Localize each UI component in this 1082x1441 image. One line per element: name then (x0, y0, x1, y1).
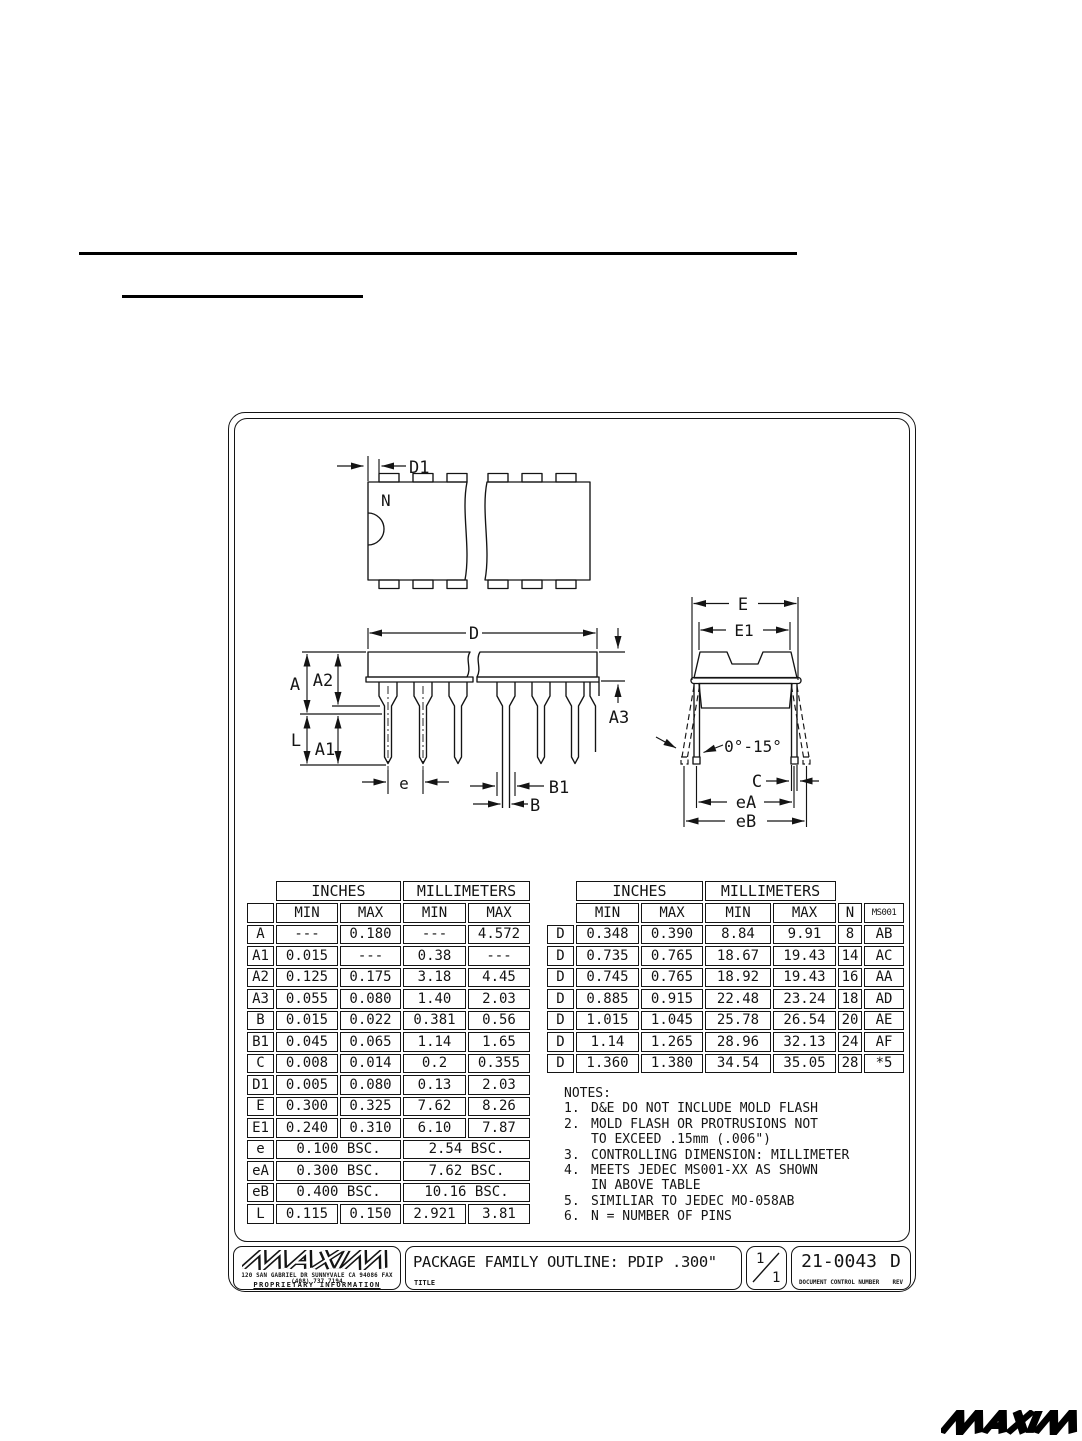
table-corner (547, 903, 574, 923)
column-header: MAX (773, 903, 836, 923)
note-text: CONTROLLING DIMENSION: MILLIMETER (591, 1148, 849, 1163)
note-item: 5.SIMILIAR TO JEDEC MO-058AB (564, 1194, 908, 1209)
dimension-value: AF (864, 1032, 904, 1052)
dimension-symbol: eB (247, 1183, 274, 1203)
dimension-value: 32.13 (773, 1032, 836, 1052)
note-item: 6.N = NUMBER OF PINS (564, 1209, 908, 1224)
dimension-value: 0.355 (468, 1054, 530, 1074)
label-a3: A3 (609, 708, 629, 728)
dimension-value: 0.735 (576, 946, 639, 966)
dimension-value: 1.265 (641, 1032, 703, 1052)
dimension-value: 7.62 BSC. (403, 1161, 530, 1181)
dimension-value: 1.14 (403, 1032, 466, 1052)
maxim-logo-icon (242, 1250, 392, 1270)
table-row: E0.3000.3257.628.26 (247, 1097, 530, 1117)
sheet-total: 1 (772, 1270, 780, 1286)
dimension-value: --- (340, 946, 401, 966)
dimension-symbol: D (547, 1054, 574, 1074)
note-text: SIMILIAR TO JEDEC MO-058AB (591, 1194, 795, 1209)
note-text: D&E DO NOT INCLUDE MOLD FLASH (591, 1101, 818, 1116)
dimension-value: --- (276, 925, 338, 945)
dimension-value: 1.015 (576, 1011, 639, 1031)
title-field-label: TITLE (414, 1279, 435, 1287)
table-row: D0.7350.76518.6719.4314AC (547, 946, 904, 966)
table-row: A20.1250.1753.184.45 (247, 968, 530, 988)
table-row: D0.8850.91522.4823.2418AD (547, 989, 904, 1009)
revision: D (890, 1251, 901, 1272)
table-corner (838, 881, 862, 901)
dimension-value: AB (864, 925, 904, 945)
dimension-value: *5 (864, 1054, 904, 1074)
label-lead-angle: 0°-15° (724, 737, 782, 756)
dimension-symbol: D (547, 989, 574, 1009)
dimension-value: 1.14 (576, 1032, 639, 1052)
label-a1: A1 (315, 740, 335, 760)
proprietary-label: PROPRIETARY INFORMATION (234, 1280, 400, 1289)
dimension-value: 1.045 (641, 1011, 703, 1031)
dimension-value: 35.05 (773, 1054, 836, 1074)
table-row: B10.0450.0651.141.65 (247, 1032, 530, 1052)
dimension-value: 0.300 (276, 1097, 338, 1117)
column-group-header: MILLIMETERS (403, 881, 530, 901)
dimension-symbol: D (547, 1032, 574, 1052)
dimension-value: 0.125 (276, 968, 338, 988)
dimension-value: 0.2 (403, 1054, 466, 1074)
dimension-value: 6.10 (403, 1118, 466, 1138)
dimension-value: 0.045 (276, 1032, 338, 1052)
table-row: B0.0150.0220.3810.56 (247, 1011, 530, 1031)
dimension-value: 0.055 (276, 989, 338, 1009)
dimension-value: 7.87 (468, 1118, 530, 1138)
dimension-value: 18 (838, 989, 862, 1009)
dimension-value: 0.115 (276, 1204, 338, 1224)
dimension-value: 0.015 (276, 946, 338, 966)
dimension-value: 10.16 BSC. (403, 1183, 530, 1203)
column-header: MIN (403, 903, 466, 923)
dimension-value: AD (864, 989, 904, 1009)
document-number-label: DOCUMENT CONTROL NUMBER (799, 1280, 879, 1286)
table-row: D1.0151.04525.7826.5420AE (547, 1011, 904, 1031)
table-corner (864, 881, 904, 901)
dimension-value: 0.175 (340, 968, 401, 988)
dimension-value: 19.43 (773, 946, 836, 966)
dimension-value: 0.014 (340, 1054, 401, 1074)
table-corner (247, 881, 274, 901)
dimension-value: AC (864, 946, 904, 966)
dimension-value: 0.745 (576, 968, 639, 988)
dimension-symbol: D (547, 968, 574, 988)
table-row: D0.3480.3908.849.918AB (547, 925, 904, 945)
note-number: 4. (564, 1163, 591, 1194)
column-group-header: INCHES (276, 881, 401, 901)
table-row: C0.0080.0140.20.355 (247, 1054, 530, 1074)
dimension-value: 2.921 (403, 1204, 466, 1224)
column-header: MIN (276, 903, 338, 923)
dimension-symbol: E1 (247, 1118, 274, 1138)
notes-block: NOTES: 1.D&E DO NOT INCLUDE MOLD FLASH2.… (564, 1086, 908, 1225)
note-text: MEETS JEDEC MS001-XX AS SHOWN IN ABOVE T… (591, 1163, 818, 1194)
table-row: A10.015---0.38--- (247, 946, 530, 966)
table-row: D10.0050.0800.132.03 (247, 1075, 530, 1095)
label-E: E (738, 595, 748, 615)
dimension-value: 2.03 (468, 1075, 530, 1095)
dimension-value: 28 (838, 1054, 862, 1074)
label-a: A (290, 675, 300, 695)
label-c: C (752, 772, 762, 792)
dimension-value: 1.380 (641, 1054, 703, 1074)
note-item: 3.CONTROLLING DIMENSION: MILLIMETER (564, 1148, 908, 1163)
dimension-value: 20 (838, 1011, 862, 1031)
dimension-value: 0.100 BSC. (276, 1140, 401, 1160)
table-row: L0.1150.1502.9213.81 (247, 1204, 530, 1224)
dimension-symbol: E (247, 1097, 274, 1117)
revision-label: REV (893, 1280, 903, 1286)
dimension-value: 0.400 BSC. (276, 1183, 401, 1203)
dimension-value: 0.310 (340, 1118, 401, 1138)
dimension-value: 0.348 (576, 925, 639, 945)
note-item: 4.MEETS JEDEC MS001-XX AS SHOWN IN ABOVE… (564, 1163, 908, 1194)
dimension-value: 0.180 (340, 925, 401, 945)
column-group-header: MILLIMETERS (705, 881, 836, 901)
table-row: D0.7450.76518.9219.4316AA (547, 968, 904, 988)
dimension-value: 0.005 (276, 1075, 338, 1095)
note-number: 1. (564, 1101, 591, 1116)
dimension-value: 0.325 (340, 1097, 401, 1117)
front-view: D A A2 L A1 A3 e (290, 624, 629, 816)
dimension-value: 0.915 (641, 989, 703, 1009)
table-row: eB0.400 BSC.10.16 BSC. (247, 1183, 530, 1203)
label-l: L (291, 731, 301, 751)
dimension-value: 1.360 (576, 1054, 639, 1074)
table-row: E10.2400.3106.107.87 (247, 1118, 530, 1138)
dimension-value: --- (468, 946, 530, 966)
dimension-value: 0.56 (468, 1011, 530, 1031)
logo-block: 120 SAN GABRIEL DR SUNNYVALE CA 94086 FA… (233, 1246, 401, 1290)
d-length-table: INCHESMILLIMETERSMINMAXMINMAXNMS001D0.34… (545, 879, 906, 1075)
label-b: B (530, 796, 540, 816)
dimension-value: 24 (838, 1032, 862, 1052)
dimension-value: 3.81 (468, 1204, 530, 1224)
table-row: A30.0550.0801.402.03 (247, 989, 530, 1009)
note-text: N = NUMBER OF PINS (591, 1209, 732, 1224)
dimension-symbol: D (547, 1011, 574, 1031)
dimension-value: 14 (838, 946, 862, 966)
dimension-symbol: A3 (247, 989, 274, 1009)
dimension-symbol: eA (247, 1161, 274, 1181)
notes-list: 1.D&E DO NOT INCLUDE MOLD FLASH2.MOLD FL… (564, 1101, 908, 1224)
dimension-value: 0.765 (641, 968, 703, 988)
column-header: N (838, 903, 862, 923)
dimension-value: AA (864, 968, 904, 988)
column-group-header: INCHES (576, 881, 703, 901)
column-header: MAX (641, 903, 703, 923)
dimension-symbol: D (547, 925, 574, 945)
dimension-value: 8.84 (705, 925, 771, 945)
label-e: e (399, 774, 409, 793)
label-b1: B1 (549, 778, 569, 798)
dimension-value: 1.65 (468, 1032, 530, 1052)
dimension-value: 19.43 (773, 968, 836, 988)
maxim-footer-logo-icon (941, 1410, 1081, 1435)
column-header: MS001 (864, 903, 904, 923)
label-d: D (469, 624, 479, 644)
dimension-value: 0.080 (340, 989, 401, 1009)
dimension-value: 0.240 (276, 1118, 338, 1138)
sheet-number-block: 1 1 (746, 1246, 787, 1290)
end-view: E E1 0°-15° C eA eB (656, 595, 819, 832)
dimension-value: 2.54 BSC. (403, 1140, 530, 1160)
column-header: MAX (468, 903, 530, 923)
dimension-value: 25.78 (705, 1011, 771, 1031)
dimension-value: 22.48 (705, 989, 771, 1009)
document-number: 21-0043 (801, 1251, 877, 1272)
dimension-value: 8 (838, 925, 862, 945)
dimension-value: 9.91 (773, 925, 836, 945)
note-text: MOLD FLASH OR PROTRUSIONS NOT TO EXCEED … (591, 1117, 818, 1148)
label-pin-count: N (381, 491, 391, 510)
dimension-value: 0.065 (340, 1032, 401, 1052)
label-e1: E1 (734, 621, 753, 640)
dimension-symbol: L (247, 1204, 274, 1224)
dimension-value: 0.13 (403, 1075, 466, 1095)
dimension-value: 0.390 (641, 925, 703, 945)
table-row: A---0.180---4.572 (247, 925, 530, 945)
dimension-value: 0.015 (276, 1011, 338, 1031)
dimension-value: 34.54 (705, 1054, 771, 1074)
dimension-value: 0.150 (340, 1204, 401, 1224)
dimension-symbol: B (247, 1011, 274, 1031)
dimension-value: 0.008 (276, 1054, 338, 1074)
datasheet-page: { "diagram": { "labels": { "n": "N", "d1… (0, 0, 1082, 1441)
title-block: PACKAGE FAMILY OUTLINE: PDIP .300" TITLE (405, 1246, 742, 1290)
table-row: D1.141.26528.9632.1324AF (547, 1032, 904, 1052)
table-row: D1.3601.38034.5435.0528*5 (547, 1054, 904, 1074)
dimension-value: 18.92 (705, 968, 771, 988)
dimension-symbol: C (247, 1054, 274, 1074)
label-d1: D1 (409, 458, 429, 478)
dimension-value: 3.18 (403, 968, 466, 988)
top-divider-rule (79, 252, 797, 255)
label-eb: eB (736, 812, 756, 832)
dimension-value: 0.765 (641, 946, 703, 966)
dimension-symbol: e (247, 1140, 274, 1160)
dimension-value: 0.080 (340, 1075, 401, 1095)
dimension-value: 4.45 (468, 968, 530, 988)
note-number: 6. (564, 1209, 591, 1224)
dimension-value: 1.40 (403, 989, 466, 1009)
top-view: N D1 (337, 456, 590, 589)
label-a2: A2 (313, 671, 333, 691)
dimension-value: 23.24 (773, 989, 836, 1009)
dimension-value: 18.67 (705, 946, 771, 966)
dimension-value: 28.96 (705, 1032, 771, 1052)
table-corner (247, 903, 274, 923)
note-item: 2.MOLD FLASH OR PROTRUSIONS NOT TO EXCEE… (564, 1117, 908, 1148)
dimension-value: --- (403, 925, 466, 945)
dimension-value: 0.885 (576, 989, 639, 1009)
dimension-symbol: D1 (247, 1075, 274, 1095)
dimension-value: 0.300 BSC. (276, 1161, 401, 1181)
dimension-value: 7.62 (403, 1097, 466, 1117)
dimension-value: 8.26 (468, 1097, 530, 1117)
dimension-symbol: A2 (247, 968, 274, 988)
dimension-value: 26.54 (773, 1011, 836, 1031)
dimension-value: 2.03 (468, 989, 530, 1009)
dimension-symbol: A1 (247, 946, 274, 966)
column-header: MIN (576, 903, 639, 923)
dimension-symbol: A (247, 925, 274, 945)
document-number-block: 21-0043 D DOCUMENT CONTROL NUMBER REV (791, 1246, 911, 1290)
note-item: 1.D&E DO NOT INCLUDE MOLD FLASH (564, 1101, 908, 1116)
table-corner (547, 881, 574, 901)
dimension-value: 4.572 (468, 925, 530, 945)
dimension-value: 0.022 (340, 1011, 401, 1031)
note-number: 3. (564, 1148, 591, 1163)
notes-heading: NOTES: (564, 1086, 908, 1101)
section-underline-rule (122, 295, 363, 298)
column-header: MIN (705, 903, 771, 923)
note-number: 2. (564, 1117, 591, 1148)
dimension-symbol: B1 (247, 1032, 274, 1052)
pin1-notch (368, 513, 384, 545)
note-number: 5. (564, 1194, 591, 1209)
dimension-value: 0.38 (403, 946, 466, 966)
table-row: e0.100 BSC.2.54 BSC. (247, 1140, 530, 1160)
table-row: eA0.300 BSC.7.62 BSC. (247, 1161, 530, 1181)
dimension-value: AE (864, 1011, 904, 1031)
dimension-value: 0.381 (403, 1011, 466, 1031)
dimension-symbol: D (547, 946, 574, 966)
dimension-value: 16 (838, 968, 862, 988)
sheet-current: 1 (756, 1251, 764, 1267)
column-header: MAX (340, 903, 401, 923)
drawing-title: PACKAGE FAMILY OUTLINE: PDIP .300" (413, 1253, 717, 1271)
label-ea: eA (736, 793, 756, 813)
dimension-table: INCHESMILLIMETERSMINMAXMINMAXA---0.180--… (245, 879, 532, 1226)
